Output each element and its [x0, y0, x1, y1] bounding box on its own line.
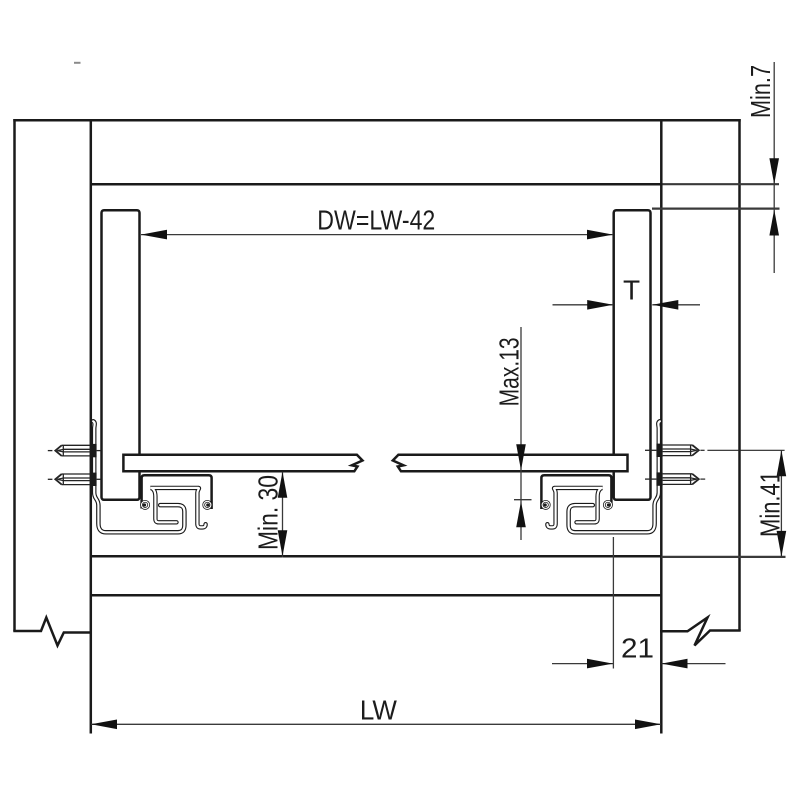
svg-text:Min. 30: Min. 30	[253, 475, 284, 550]
svg-text:Min.7: Min.7	[745, 65, 776, 118]
svg-text:21: 21	[621, 633, 654, 664]
svg-text:DW=LW-42: DW=LW-42	[317, 205, 435, 236]
svg-text:T: T	[623, 275, 640, 306]
svg-text:LW: LW	[360, 695, 398, 726]
svg-text:Min.41: Min.41	[755, 471, 786, 537]
svg-text:Max.13: Max.13	[494, 337, 525, 406]
